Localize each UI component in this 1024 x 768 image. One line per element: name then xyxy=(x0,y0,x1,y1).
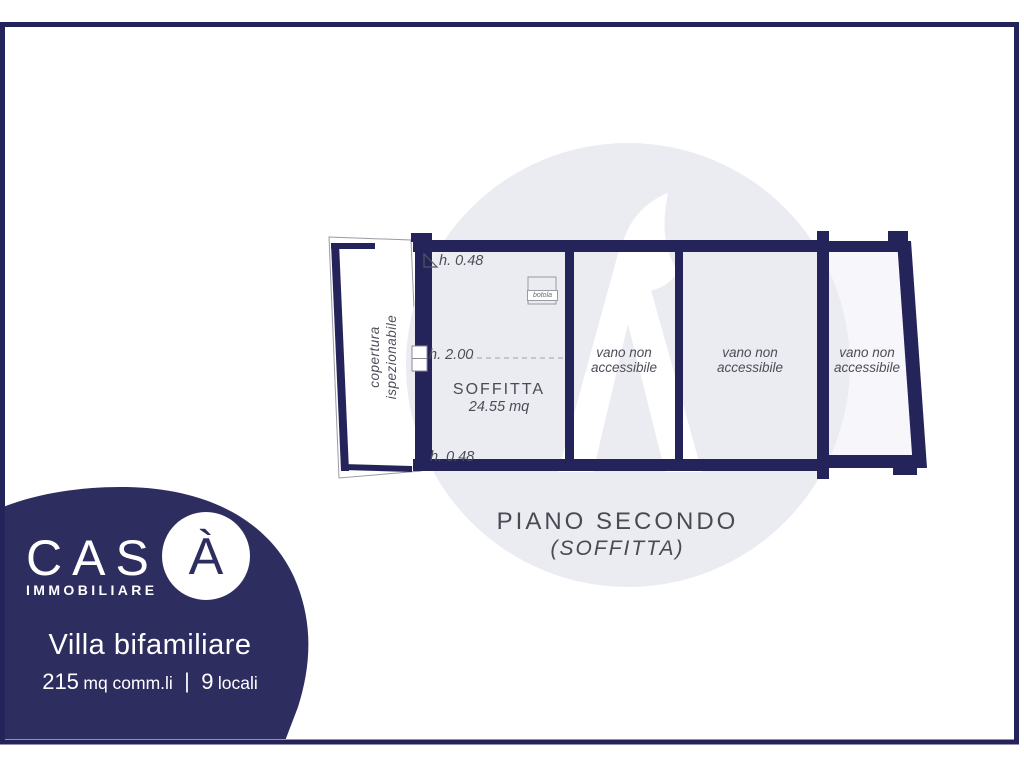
wall-pillar-top xyxy=(888,231,908,241)
copertura-label: copertura ispezionabile xyxy=(366,277,400,437)
plan-title: PIANO SECONDO xyxy=(465,508,770,536)
brand-logo-text: CAS xyxy=(26,529,159,587)
wall-pillar-bottom xyxy=(893,466,917,475)
vano-3-line2: accessibile xyxy=(807,360,927,375)
vano-1-line1: vano non xyxy=(564,345,684,360)
wall-copertura-top xyxy=(331,243,375,249)
wall-top xyxy=(413,240,828,252)
listing-rooms-value: 9 xyxy=(201,669,213,694)
soffitta-room-area: 24.55 mq xyxy=(433,399,565,415)
vano-label-2: vano non accessibile xyxy=(690,345,810,375)
copertura-line1: copertura xyxy=(366,277,383,437)
listing-title: Villa bifamiliare xyxy=(5,629,295,662)
listing-area-value: 215 xyxy=(42,669,79,694)
soffitta-room-name: SOFFITTA xyxy=(433,381,565,399)
vano-1-line2: accessibile xyxy=(564,360,684,375)
height-label-bottom: h. 0.48 xyxy=(430,449,474,465)
brand-tagline: IMMOBILIARE xyxy=(26,582,158,598)
brand-logo-accent-letter: À xyxy=(189,529,224,583)
brand-logo-disc: À xyxy=(162,512,250,600)
vano-label-1: vano non accessibile xyxy=(564,345,684,375)
vano-label-3: vano non accessibile xyxy=(807,345,927,375)
floorplan-page: { "brand": { "logo_text": "CAS", "logo_a… xyxy=(0,0,1024,768)
height-label-middle: h. 2.00 xyxy=(429,347,473,363)
botola-label: botola xyxy=(527,290,558,301)
listing-stats: 215 mq comm.li | 9 locali xyxy=(5,669,295,695)
wall-right-block-top xyxy=(829,241,899,252)
wall-left-stub xyxy=(411,233,432,242)
copertura-line2: ispezionabile xyxy=(383,277,400,437)
vano-2-line2: accessibile xyxy=(690,360,810,375)
vano-3-line1: vano non xyxy=(807,345,927,360)
vano-2-line1: vano non xyxy=(690,345,810,360)
listing-rooms-unit: locali xyxy=(218,673,258,693)
plan-subtitle: (SOFFITTA) xyxy=(465,537,770,561)
wall-bottom xyxy=(413,459,828,471)
height-label-top: h. 0.48 xyxy=(439,253,483,269)
listing-separator: | xyxy=(184,670,189,693)
listing-area-unit: mq comm.li xyxy=(83,673,172,693)
